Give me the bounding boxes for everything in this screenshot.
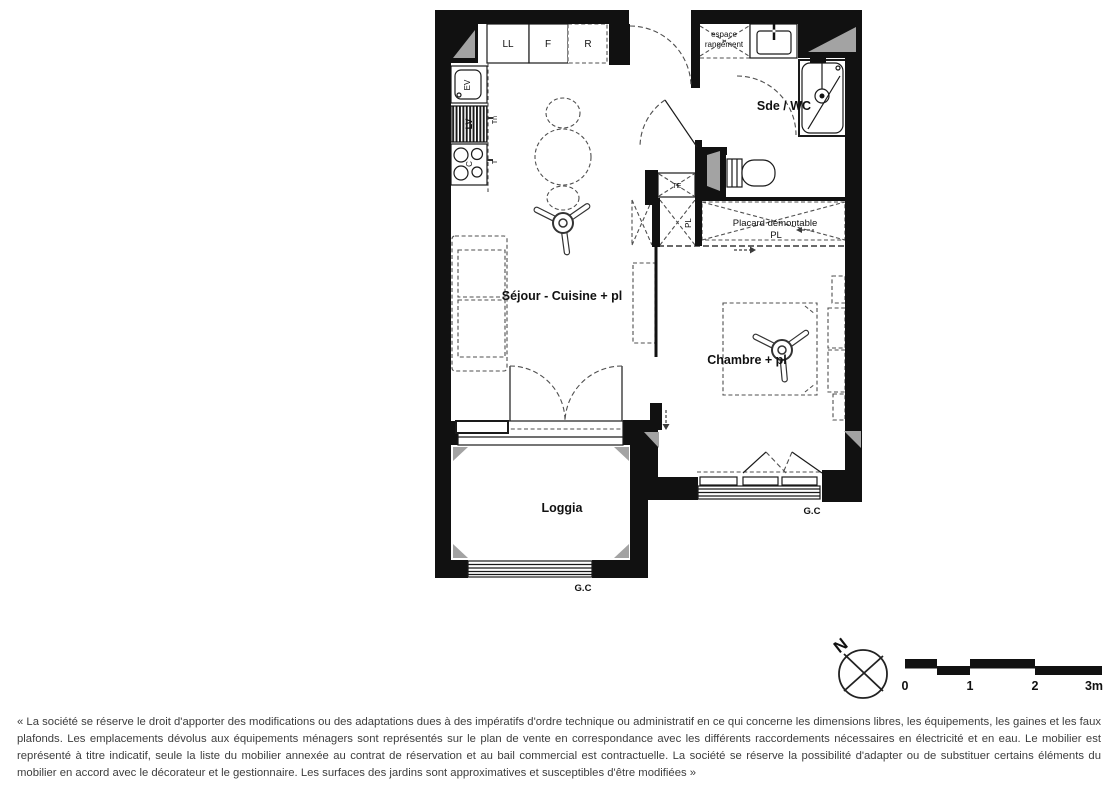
wardrobe — [832, 276, 845, 303]
entry-door-swing2 — [640, 100, 665, 147]
window-pane — [782, 477, 817, 485]
corner-hatch — [453, 544, 468, 558]
wardrobe — [833, 394, 845, 420]
sejour-closet — [633, 263, 655, 343]
label-espace: espace — [711, 30, 737, 39]
casement-solid — [792, 452, 822, 473]
corner-hatch — [614, 544, 629, 558]
sofa-outline — [452, 236, 507, 371]
scale-tick-1: 1 — [967, 679, 974, 693]
label-placard-pl: PL — [770, 230, 782, 241]
room-label-loggia: Loggia — [542, 501, 584, 515]
north-label: N — [830, 634, 851, 657]
corner-hatch — [453, 447, 468, 461]
label-sink: EV — [463, 79, 472, 90]
toilet-cistern — [727, 159, 742, 187]
label-te: TE — [673, 183, 682, 190]
label-placard-demontable: Placard démontable — [733, 218, 818, 229]
scale-segment — [970, 659, 1035, 667]
label-tn: Tn — [492, 116, 499, 124]
bed — [723, 303, 817, 395]
scale-tick-0: 0 — [902, 679, 909, 693]
sofa-cushion — [458, 250, 505, 297]
scale-bar: 0 1 2 3m — [902, 659, 1104, 693]
arrow-down-head — [663, 424, 670, 430]
bed-fold-marks — [805, 306, 815, 392]
window-pane — [700, 477, 737, 485]
dining-table — [535, 129, 591, 185]
north-compass: N — [830, 634, 887, 698]
french-door-leaves — [510, 366, 622, 421]
loggia-railing — [468, 561, 592, 577]
label-t: T — [492, 159, 499, 164]
corner-hatch — [614, 447, 629, 461]
room-label-chambre: Chambre + pl — [707, 353, 787, 367]
scale-segment — [1035, 667, 1102, 675]
entry-door-leaf — [665, 100, 697, 147]
ceiling-fan-sejour — [533, 203, 591, 255]
label-fridge: F — [545, 39, 551, 50]
label-washing-machine: LL — [502, 39, 514, 50]
label-gc-chambre: G.C — [804, 506, 821, 517]
wardrobe — [828, 350, 845, 392]
duct-triangle — [707, 151, 720, 191]
chair — [547, 186, 579, 210]
shower-drain-dot — [820, 94, 825, 99]
label-gc-loggia: G.C — [575, 583, 592, 594]
casement-solid — [743, 452, 766, 473]
label-rangement: rangement — [705, 40, 744, 49]
closet-a-cross — [632, 200, 652, 245]
room-label-sde-wc: Sde / WC — [757, 99, 811, 113]
casement-dash — [783, 452, 792, 473]
chambre-window — [697, 452, 822, 499]
chair — [546, 98, 580, 128]
door-swing — [510, 366, 565, 421]
legal-disclaimer: « La société se réserve le droit d'appor… — [17, 714, 1101, 782]
label-reserved: R — [584, 39, 591, 50]
label-cooktop: C — [465, 161, 474, 167]
scale-segment — [905, 659, 937, 667]
bay-window-panel — [456, 421, 508, 433]
window-pane — [743, 477, 778, 485]
flow-arrows — [663, 227, 815, 430]
toilet-bowl — [742, 160, 775, 186]
casement-dash — [766, 452, 786, 473]
label-dishwasher: LV — [464, 119, 474, 130]
entry-door-swing — [630, 26, 691, 87]
bay-window — [456, 366, 623, 445]
wardrobe — [828, 308, 845, 348]
scale-tick-3m: 3m — [1085, 679, 1103, 693]
scale-tick-2: 2 — [1032, 679, 1039, 693]
arrow-right-head — [750, 247, 756, 254]
door-swing — [565, 366, 622, 421]
room-label-sejour: Séjour - Cuisine + pl — [502, 289, 623, 303]
scale-segment — [937, 667, 970, 675]
faucet-dot — [773, 30, 776, 33]
floor-plan: Séjour - Cuisine + pl Chambre + pl Loggi… — [0, 0, 1117, 800]
sofa-cushion — [458, 300, 505, 357]
label-pl-vertical: PL — [684, 218, 693, 228]
